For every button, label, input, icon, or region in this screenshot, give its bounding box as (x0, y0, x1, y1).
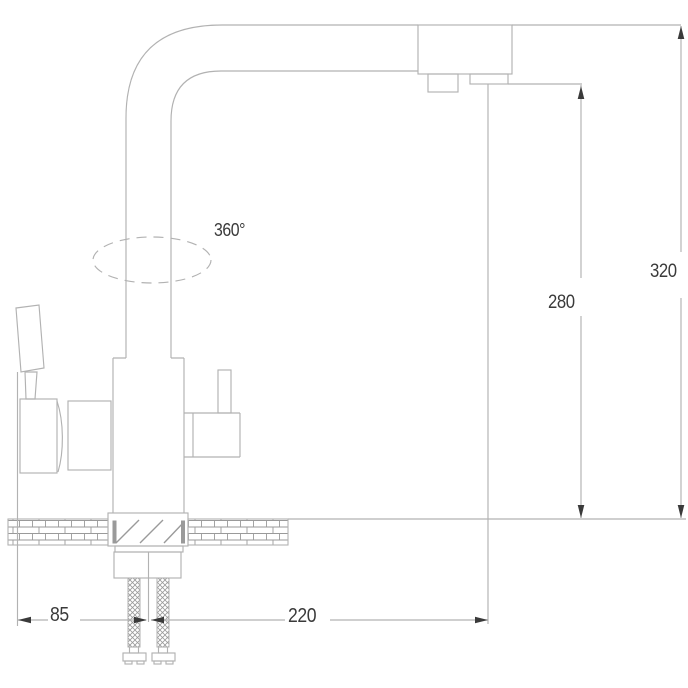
swivel-rotation-indicator (93, 237, 211, 283)
hose-end-fittings (123, 653, 175, 664)
filter-handle (184, 370, 240, 457)
escutcheon-flange (108, 513, 188, 552)
spout-reach-label: 220 (288, 605, 316, 628)
spout-height-label: 280 (548, 292, 575, 314)
dimension-280 (578, 85, 585, 518)
spout-tube (126, 25, 418, 358)
handle-offset-label: 85 (50, 604, 69, 627)
spray-outlet (428, 74, 458, 92)
drawing-svg (0, 0, 688, 688)
faucet-body (113, 358, 184, 513)
mounting-base (114, 552, 181, 578)
faucet-technical-drawing: 360° 280 320 85 220 (0, 0, 688, 688)
countertop (8, 519, 686, 545)
mixer-lever-handle (16, 305, 111, 473)
swivel-angle-label: 360° (214, 220, 245, 241)
overall-height-label: 320 (650, 261, 677, 283)
aerator-outlet (470, 74, 508, 84)
spout-head (418, 25, 512, 92)
